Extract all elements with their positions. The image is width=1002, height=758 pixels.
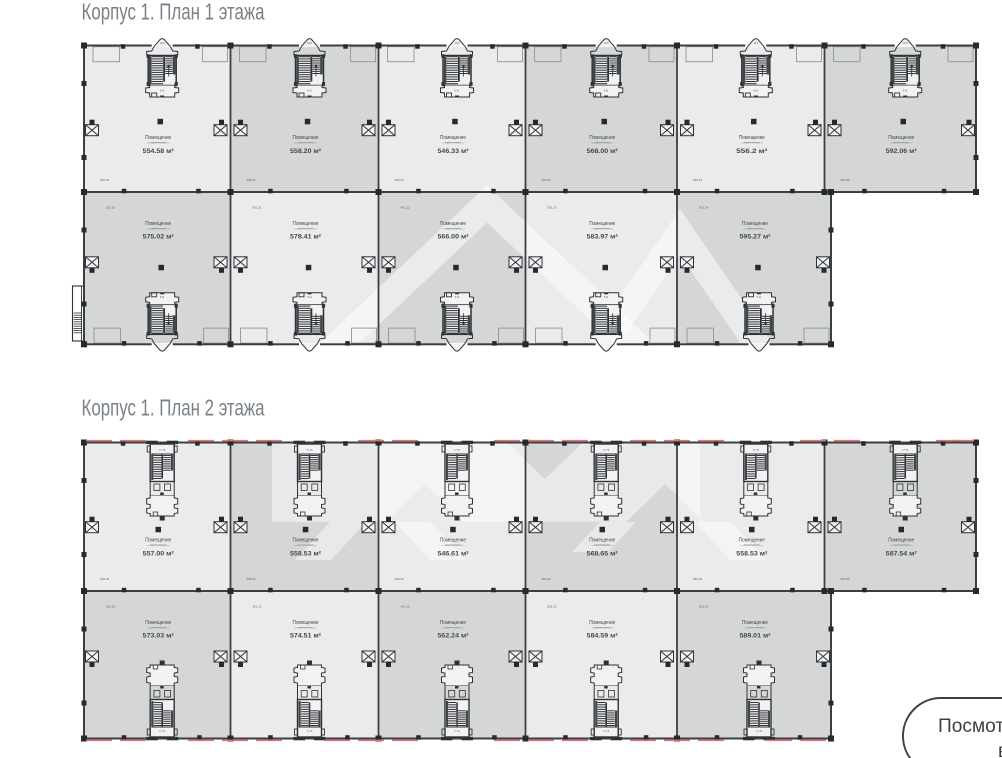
svg-text:19.8: 19.8 bbox=[307, 42, 312, 45]
svg-text:свободного назначения: свободного назначения bbox=[442, 143, 465, 145]
svg-text:5.41: 5.41 bbox=[753, 89, 758, 92]
svg-text:546.33 м²: 546.33 м² bbox=[438, 148, 469, 155]
svg-text:свободного назначения: свободного назначения bbox=[147, 143, 170, 145]
svg-text:17.76: 17.76 bbox=[307, 729, 314, 732]
svg-text:Корпус 1. План 1 этажа: Корпус 1. План 1 этажа bbox=[82, 0, 265, 25]
svg-text:589.01 м²: 589.01 м² bbox=[740, 632, 771, 639]
svg-text:251.20: 251.20 bbox=[106, 605, 116, 609]
svg-text:свободного назначения: свободного назначения bbox=[744, 229, 767, 231]
svg-text:451.22: 451.22 bbox=[401, 605, 411, 609]
svg-text:592.06 м²: 592.06 м² bbox=[886, 148, 917, 155]
svg-text:свободного назначения: свободного назначения bbox=[147, 229, 170, 231]
svg-text:650.45: 650.45 bbox=[841, 178, 851, 182]
svg-text:17.76: 17.76 bbox=[603, 729, 610, 732]
svg-text:17.76: 17.76 bbox=[902, 449, 909, 452]
svg-text:Помещение: Помещение bbox=[440, 221, 466, 227]
svg-text:578.41 м²: 578.41 м² bbox=[290, 233, 321, 240]
svg-text:Корпус 1. План 2 этажа: Корпус 1. План 2 этажа bbox=[82, 395, 265, 421]
svg-text:свободного назначения: свободного назначения bbox=[442, 229, 465, 231]
svg-text:17.76: 17.76 bbox=[603, 449, 610, 452]
svg-text:351.21: 351.21 bbox=[253, 605, 263, 609]
svg-text:свободного назначения: свободного назначения bbox=[147, 545, 170, 547]
svg-text:19.8: 19.8 bbox=[903, 42, 908, 45]
svg-text:17.76: 17.76 bbox=[159, 449, 166, 452]
svg-text:Помещение: Помещение bbox=[145, 221, 171, 227]
svg-text:651.24: 651.24 bbox=[699, 206, 709, 210]
svg-text:Помещение: Помещение bbox=[440, 538, 466, 544]
svg-text:Помещение: Помещение bbox=[888, 135, 914, 141]
svg-text:Помещение: Помещение bbox=[293, 620, 319, 626]
svg-text:350.42: 350.42 bbox=[395, 178, 405, 182]
svg-text:свободного назначения: свободного назначения bbox=[890, 545, 913, 547]
svg-text:17.76: 17.76 bbox=[753, 449, 760, 452]
svg-text:свободного назначения: свободного назначения bbox=[890, 143, 913, 145]
svg-text:250.41: 250.41 bbox=[247, 577, 257, 581]
svg-text:17.76: 17.76 bbox=[454, 449, 461, 452]
svg-text:Помещение: Помещение bbox=[440, 620, 466, 626]
svg-text:17.76: 17.76 bbox=[756, 729, 763, 732]
svg-text:Помещение: Помещение bbox=[145, 135, 171, 141]
svg-text:573.03 м²: 573.03 м² bbox=[143, 632, 174, 639]
svg-text:150.40: 150.40 bbox=[100, 178, 110, 182]
svg-text:595.27 м²: 595.27 м² bbox=[740, 233, 771, 240]
svg-text:5.41: 5.41 bbox=[455, 296, 460, 299]
svg-text:Помещение: Помещение bbox=[589, 221, 615, 227]
svg-text:5.41: 5.41 bbox=[604, 89, 609, 92]
svg-text:558.53 м²: 558.53 м² bbox=[290, 551, 321, 558]
svg-text:Помещение: Помещение bbox=[589, 538, 615, 544]
svg-text:свободного назначения: свободного назначения bbox=[591, 229, 614, 231]
svg-text:557.00 м²: 557.00 м² bbox=[143, 551, 174, 558]
svg-text:574.51 м²: 574.51 м² bbox=[290, 632, 321, 639]
svg-text:556.2 м²: 556.2 м² bbox=[736, 148, 767, 155]
svg-text:19.8: 19.8 bbox=[604, 42, 609, 45]
svg-text:550.44: 550.44 bbox=[693, 178, 703, 182]
svg-text:свободного назначения: свободного назначения bbox=[294, 545, 317, 547]
svg-text:5.41: 5.41 bbox=[455, 89, 460, 92]
svg-text:450.43: 450.43 bbox=[542, 577, 552, 581]
svg-text:250.41: 250.41 bbox=[247, 178, 257, 182]
svg-text:свободного назначения: свободного назначения bbox=[294, 628, 317, 630]
svg-text:Помещение: Помещение bbox=[293, 221, 319, 227]
svg-text:5.41: 5.41 bbox=[757, 296, 762, 299]
svg-text:Помещение: Помещение bbox=[293, 538, 319, 544]
svg-text:свободного назначения: свободного назначения bbox=[591, 143, 614, 145]
svg-text:свободного назначения: свободного назначения bbox=[294, 143, 317, 145]
svg-text:свободного назначения: свободного назначения bbox=[442, 628, 465, 630]
svg-text:Помещение: Помещение bbox=[888, 538, 914, 544]
svg-text:5.41: 5.41 bbox=[307, 296, 312, 299]
svg-text:Помещение: Помещение bbox=[145, 620, 171, 626]
svg-text:Помещение: Помещение bbox=[742, 620, 768, 626]
svg-text:Помещение: Помещение bbox=[739, 538, 765, 544]
svg-text:Помещение: Помещение bbox=[589, 135, 615, 141]
svg-text:Посмотреть планировку: Посмотреть планировку bbox=[938, 715, 1002, 737]
svg-text:Помещение: Помещение bbox=[293, 135, 319, 141]
svg-text:19.8: 19.8 bbox=[455, 42, 460, 45]
svg-text:свободного назначения: свободного назначения bbox=[442, 545, 465, 547]
svg-text:Помещение: Помещение bbox=[739, 135, 765, 141]
svg-text:в шоуруме: в шоуруме bbox=[998, 740, 1002, 758]
svg-text:550.44: 550.44 bbox=[693, 577, 703, 581]
svg-text:551.23: 551.23 bbox=[548, 605, 558, 609]
svg-text:17.76: 17.76 bbox=[307, 449, 314, 452]
svg-text:568.65 м²: 568.65 м² bbox=[587, 551, 618, 558]
svg-text:свободного назначения: свободного назначения bbox=[294, 229, 317, 231]
svg-text:5.41: 5.41 bbox=[903, 89, 908, 92]
svg-text:19.8: 19.8 bbox=[160, 42, 165, 45]
svg-text:251.20: 251.20 bbox=[106, 206, 116, 210]
svg-text:5.41: 5.41 bbox=[160, 89, 165, 92]
svg-text:583.97 м²: 583.97 м² bbox=[587, 233, 618, 240]
svg-text:свободного назначения: свободного назначения bbox=[147, 628, 170, 630]
svg-text:650.45: 650.45 bbox=[841, 577, 851, 581]
svg-text:451.22: 451.22 bbox=[401, 206, 411, 210]
svg-text:351.21: 351.21 bbox=[253, 206, 263, 210]
svg-text:551.23: 551.23 bbox=[548, 206, 558, 210]
svg-text:5.41: 5.41 bbox=[604, 296, 609, 299]
svg-text:5.41: 5.41 bbox=[160, 296, 165, 299]
svg-text:свободного назначения: свободного назначения bbox=[591, 545, 614, 547]
svg-text:Помещение: Помещение bbox=[145, 538, 171, 544]
svg-text:587.54 м²: 587.54 м² bbox=[886, 551, 917, 558]
svg-text:568.00 м²: 568.00 м² bbox=[587, 148, 618, 155]
svg-text:651.24: 651.24 bbox=[699, 605, 709, 609]
svg-text:546.61 м²: 546.61 м² bbox=[438, 551, 469, 558]
svg-text:558.53 м²: 558.53 м² bbox=[736, 551, 767, 558]
svg-text:554.58 м²: 554.58 м² bbox=[143, 148, 174, 155]
svg-text:350.42: 350.42 bbox=[395, 577, 405, 581]
svg-text:свободного назначения: свободного назначения bbox=[744, 628, 767, 630]
svg-text:558.20 м²: 558.20 м² bbox=[290, 148, 321, 155]
svg-text:17.76: 17.76 bbox=[159, 729, 166, 732]
svg-text:свободного назначения: свободного назначения bbox=[740, 143, 763, 145]
svg-text:19.8: 19.8 bbox=[753, 42, 758, 45]
svg-text:575.02 м²: 575.02 м² bbox=[143, 233, 174, 240]
svg-text:150.40: 150.40 bbox=[100, 577, 110, 581]
svg-text:Помещение: Помещение bbox=[440, 135, 466, 141]
svg-text:свободного назначения: свободного назначения bbox=[740, 545, 763, 547]
svg-text:Помещение: Помещение bbox=[742, 221, 768, 227]
svg-text:17.76: 17.76 bbox=[454, 729, 461, 732]
svg-text:Помещение: Помещение bbox=[589, 620, 615, 626]
svg-text:свободного назначения: свободного назначения bbox=[591, 628, 614, 630]
svg-text:562.24 м²: 562.24 м² bbox=[438, 632, 469, 639]
svg-text:584.59 м²: 584.59 м² bbox=[587, 632, 618, 639]
svg-text:5.41: 5.41 bbox=[307, 89, 312, 92]
svg-text:566.00 м²: 566.00 м² bbox=[438, 233, 469, 240]
svg-text:450.43: 450.43 bbox=[542, 178, 552, 182]
